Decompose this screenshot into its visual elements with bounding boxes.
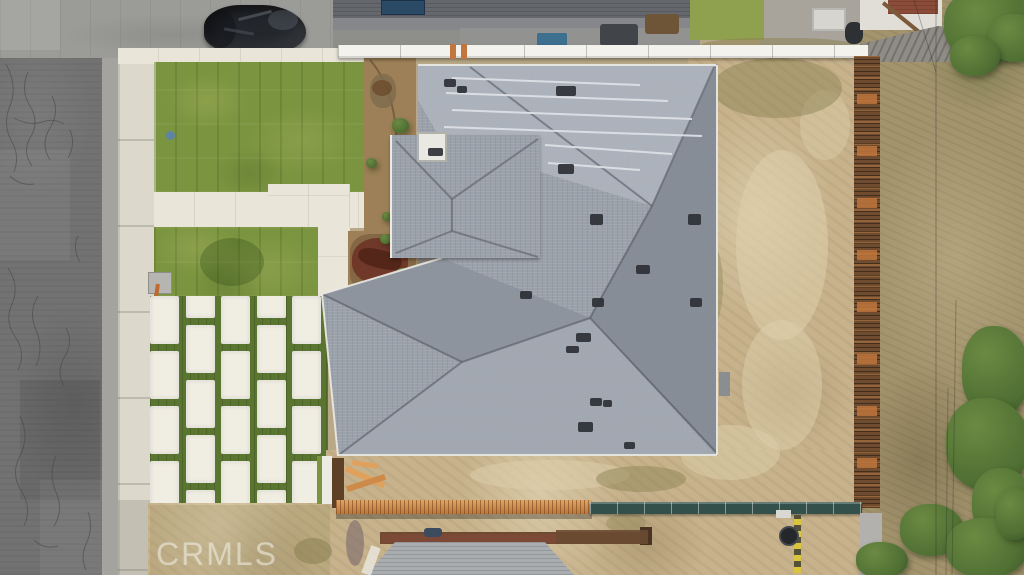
roof-vent bbox=[556, 86, 576, 96]
aerial-photo: CRMLS bbox=[0, 0, 1024, 575]
driveway-paver bbox=[221, 296, 250, 344]
green-fence bbox=[590, 502, 862, 514]
roof-vent bbox=[590, 398, 602, 406]
roof-vent bbox=[590, 214, 603, 225]
portico-roof bbox=[390, 135, 540, 258]
lawn-blue-toy bbox=[166, 131, 175, 140]
weeds-purple bbox=[346, 520, 364, 566]
roof-vent bbox=[576, 333, 591, 342]
driveway-paver bbox=[292, 351, 321, 399]
bottom-roof-item bbox=[424, 528, 442, 537]
bottom-wall-right bbox=[556, 530, 648, 544]
street-patch-light-2 bbox=[40, 480, 102, 575]
driveway-paver bbox=[292, 296, 321, 344]
driveway-paver bbox=[150, 406, 179, 454]
driveway-paver bbox=[186, 325, 215, 373]
neighbor-solar-panel bbox=[381, 0, 425, 15]
construction-fence bbox=[336, 500, 592, 514]
planter-twigs bbox=[372, 80, 392, 96]
gate-post bbox=[450, 44, 456, 59]
fence-rail bbox=[857, 302, 877, 312]
driveway-paver bbox=[150, 296, 179, 344]
driveway-paver bbox=[257, 380, 286, 428]
roof-vent bbox=[558, 164, 574, 174]
roof-vent bbox=[690, 298, 702, 307]
neighbor-item-brown bbox=[645, 14, 679, 34]
car-cover-sheen bbox=[268, 10, 298, 30]
driveway-paver bbox=[221, 351, 250, 399]
wood-fence bbox=[854, 56, 880, 508]
driveway-paver bbox=[257, 296, 286, 318]
roof-vent bbox=[624, 442, 635, 449]
fence-rail bbox=[857, 94, 877, 104]
roof-vent bbox=[520, 291, 532, 299]
weed-patch-3 bbox=[596, 466, 686, 492]
tree bbox=[996, 488, 1024, 540]
roof-chimney-cap bbox=[417, 132, 447, 162]
lawn-tree-shadow bbox=[200, 238, 264, 286]
roof-vent bbox=[428, 148, 443, 156]
driveway-paver bbox=[186, 296, 215, 318]
driveway-paver bbox=[150, 461, 179, 505]
top-apron-light bbox=[0, 0, 60, 50]
roof-vent bbox=[457, 86, 467, 93]
roof-vent bbox=[688, 214, 701, 225]
driveway-paver bbox=[292, 406, 321, 454]
driveway-paver bbox=[257, 325, 286, 373]
roof-vent bbox=[566, 346, 579, 353]
driveway-paver bbox=[186, 380, 215, 428]
roof-vent bbox=[636, 265, 650, 274]
roof-vent bbox=[444, 79, 456, 87]
fence-rail bbox=[857, 458, 877, 468]
front-walk-vertical bbox=[318, 227, 350, 297]
striped-pole bbox=[794, 515, 801, 573]
white-fence bbox=[338, 45, 866, 58]
driveway-paver bbox=[257, 435, 286, 483]
weed-patch bbox=[712, 58, 842, 118]
tree bbox=[950, 36, 1000, 76]
lumber-white-edge bbox=[322, 456, 332, 504]
fence-rail bbox=[857, 406, 877, 416]
fence-rail bbox=[857, 354, 877, 364]
driveway-paver bbox=[150, 351, 179, 399]
planter-shrub bbox=[392, 118, 409, 133]
green-fence-object bbox=[776, 510, 791, 518]
fence-rail bbox=[857, 250, 877, 260]
driveway-paver bbox=[221, 406, 250, 454]
roof-vent bbox=[578, 422, 593, 432]
neighbor-lawn-patch bbox=[690, 0, 764, 40]
fence-rail bbox=[857, 146, 877, 156]
bottom-roof-red-edge bbox=[382, 534, 558, 543]
bottom-neighbor-roof bbox=[366, 542, 574, 575]
street-patch-light bbox=[0, 150, 70, 260]
planter-shrub-2 bbox=[366, 158, 377, 168]
paver-driveway bbox=[150, 296, 328, 505]
tree bbox=[856, 542, 908, 575]
construction-fence-shadow bbox=[336, 514, 592, 519]
sidewalk bbox=[118, 55, 154, 575]
roof-vent bbox=[592, 298, 604, 307]
bucket bbox=[779, 526, 799, 546]
front-lawn-upper bbox=[154, 62, 366, 193]
utility-box bbox=[148, 272, 172, 294]
ac-unit bbox=[719, 372, 730, 396]
neighbor-pad-white bbox=[812, 8, 846, 31]
neighbor-bin-dark bbox=[600, 24, 638, 46]
watermark: CRMLS bbox=[156, 536, 278, 573]
driveway-paver bbox=[186, 435, 215, 483]
fence-rail bbox=[857, 198, 877, 208]
sand-patch bbox=[736, 150, 828, 340]
gate-post-2 bbox=[461, 44, 467, 59]
roof-vent bbox=[603, 400, 612, 407]
driveway-paver bbox=[221, 461, 250, 505]
